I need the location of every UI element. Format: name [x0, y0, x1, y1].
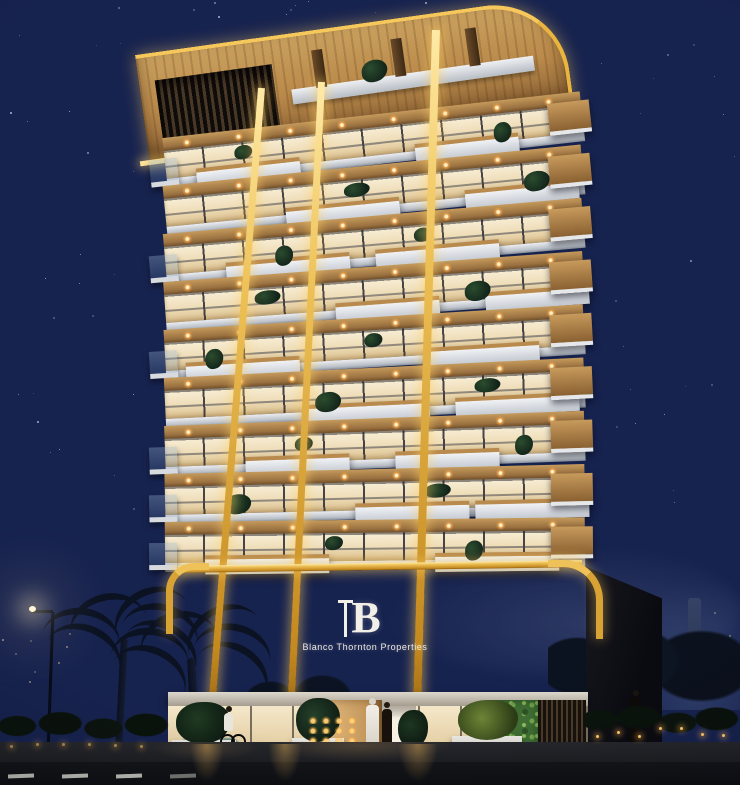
garden-light	[114, 744, 117, 747]
garden-lights	[0, 0, 740, 785]
garden-light	[10, 745, 13, 748]
garden-light	[140, 745, 143, 748]
garden-light	[680, 727, 683, 730]
garden-light	[659, 727, 662, 730]
garden-light	[62, 743, 65, 746]
garden-light	[701, 733, 704, 736]
garden-light	[88, 743, 91, 746]
garden-light	[617, 731, 620, 734]
scene: B Blanco Thornton Properties	[0, 0, 740, 785]
garden-light	[638, 735, 641, 738]
garden-light	[596, 735, 599, 738]
garden-light	[36, 743, 39, 746]
garden-light	[722, 734, 725, 737]
